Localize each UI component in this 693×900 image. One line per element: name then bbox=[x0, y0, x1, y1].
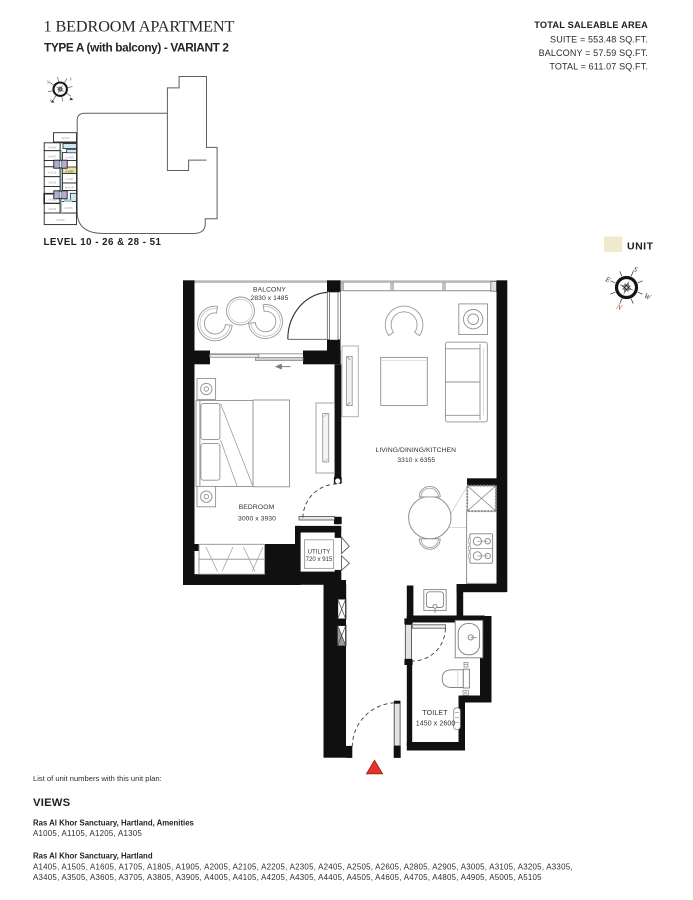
svg-text:AXX01: AXX01 bbox=[48, 155, 57, 159]
svg-text:VIEWS: VIEWS bbox=[33, 797, 71, 809]
svg-text:AXX09: AXX09 bbox=[64, 206, 73, 210]
svg-text:3000 x 3930: 3000 x 3930 bbox=[238, 515, 276, 522]
svg-text:AXX11: AXX11 bbox=[48, 198, 56, 202]
svg-text:Ras Al Khor Sanctuary, Hartlan: Ras Al Khor Sanctuary, Hartland, Ameniti… bbox=[33, 818, 195, 827]
svg-text:2830 x 1485: 2830 x 1485 bbox=[251, 295, 289, 302]
svg-text:TOTAL = 611.07 SQ.FT.: TOTAL = 611.07 SQ.FT. bbox=[549, 62, 648, 72]
svg-text:A 1X05: A 1X05 bbox=[65, 169, 74, 173]
svg-text:UNIT: UNIT bbox=[627, 241, 654, 253]
svg-text:SUITE = 553.48 SQ.FT.: SUITE = 553.48 SQ.FT. bbox=[550, 35, 648, 45]
svg-text:A1005, A1105, A1205, A1305: A1005, A1105, A1205, A1305 bbox=[33, 829, 142, 838]
svg-text:A1405, A1505, A1605, A1705, A1: A1405, A1505, A1605, A1705, A1805, A1905… bbox=[33, 863, 573, 872]
svg-text:UTILITY: UTILITY bbox=[308, 550, 331, 556]
svg-text:AXX02: AXX02 bbox=[48, 146, 57, 150]
svg-text:BALCONY: BALCONY bbox=[253, 286, 286, 293]
svg-text:A3405, A3505, A3605, A3705, A3: A3405, A3505, A3605, A3705, A3805, A3905… bbox=[33, 873, 542, 882]
svg-text:S: S bbox=[70, 77, 72, 82]
svg-text:TOILET: TOILET bbox=[422, 710, 448, 717]
svg-text:3310 x 6355: 3310 x 6355 bbox=[397, 457, 435, 464]
svg-text:BALCONY = 57.59 SQ.FT.: BALCONY = 57.59 SQ.FT. bbox=[539, 48, 648, 58]
svg-text:AXX12: AXX12 bbox=[48, 181, 57, 185]
svg-text:A 1X07: A 1X07 bbox=[65, 177, 74, 181]
svg-text:BEDROOM: BEDROOM bbox=[239, 504, 275, 511]
svg-text:AXX13: AXX13 bbox=[48, 171, 57, 175]
svg-text:MAXUP: MAXUP bbox=[65, 186, 74, 190]
svg-text:720 x 915: 720 x 915 bbox=[306, 557, 333, 563]
svg-text:TYPE A (with balcony) - VARIA: TYPE A (with balcony) - VARIANT 2 bbox=[44, 41, 229, 55]
svg-text:TOTAL SALEABLE AREA: TOTAL SALEABLE AREA bbox=[534, 20, 648, 30]
svg-text:LIVING/DINING/KITCHEN: LIVING/DINING/KITCHEN bbox=[376, 447, 457, 454]
svg-text:1 BEDROOM APARTMENT: 1 BEDROOM APARTMENT bbox=[44, 18, 235, 36]
svg-text:AXX10: AXX10 bbox=[48, 207, 57, 211]
svg-text:List of unit numbers with this: List of unit numbers with this unit plan… bbox=[33, 774, 162, 783]
svg-text:AXX00: AXX00 bbox=[56, 218, 65, 222]
svg-text:Ras Al Khor Sanctuary, Hartlan: Ras Al Khor Sanctuary, Hartland bbox=[33, 852, 153, 861]
svg-text:AXX03: AXX03 bbox=[61, 136, 70, 140]
svg-text:1450 x 2600: 1450 x 2600 bbox=[416, 720, 456, 727]
svg-text:A 1X08: A 1X08 bbox=[65, 155, 74, 159]
svg-text:LEVEL 10 - 26 & 28 - 51: LEVEL 10 - 26 & 28 - 51 bbox=[44, 237, 162, 248]
